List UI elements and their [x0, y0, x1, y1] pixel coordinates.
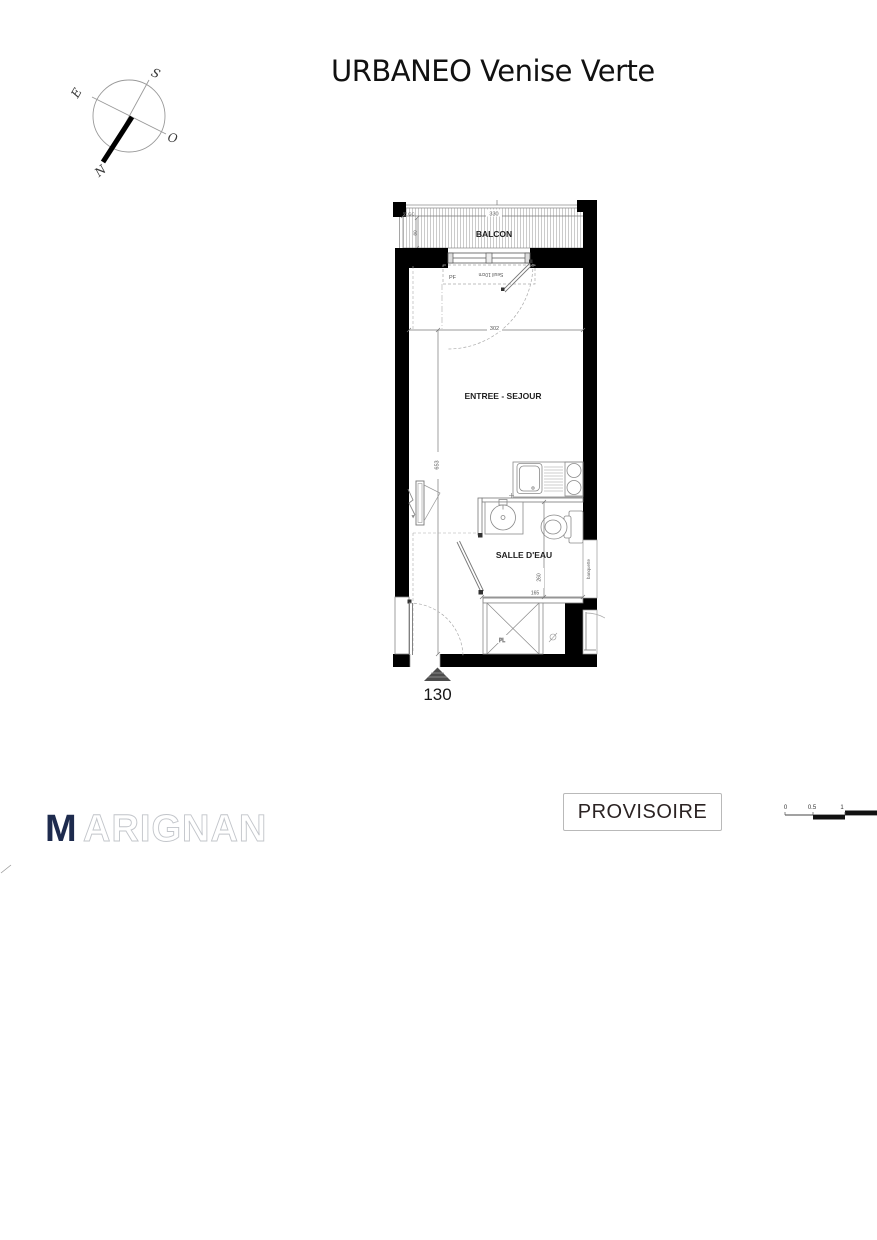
compass-west-label: O [167, 130, 179, 146]
unit-number: 130 [423, 685, 451, 704]
logo-wordmark: ARIGNAN [83, 808, 267, 850]
window-threshold-label: Seuil 10cm [479, 271, 504, 277]
marignan-logo: M ARIGNAN [45, 806, 270, 850]
scale-tick-1: 1 [840, 805, 844, 811]
unit-marker: 130 [423, 668, 451, 705]
compass-rose: S E O N [70, 60, 190, 182]
provisional-stamp-label: PROVISOIRE [578, 801, 707, 824]
living-room-label: ENTREE - SEJOUR [465, 391, 542, 401]
window-label: PF [449, 275, 457, 281]
living-length-dim: 653 [435, 460, 441, 469]
bathroom-width-dim: 165 [531, 591, 540, 597]
scale-tick-05: 0.5 [808, 805, 817, 811]
bathroom-depth-dim: 260 [537, 573, 543, 582]
lightning-bolt-icon [408, 489, 415, 515]
compass-needle-north [103, 117, 132, 162]
toilet [541, 511, 583, 543]
entrance-triangle-icon [424, 668, 451, 682]
bathroom-label: SALLE D'EAU [496, 550, 552, 560]
adjacent-door-recess [583, 610, 605, 654]
bench-label: banquette [586, 558, 591, 579]
scale-bar: 0 0.5 1 [780, 797, 877, 827]
scale-tick-0: 0 [784, 805, 788, 811]
balcony: 330 GC 80 BALCON [393, 200, 597, 250]
entry-guides [413, 533, 480, 652]
closet: PL [483, 603, 543, 654]
logo-initial: M [45, 808, 77, 850]
balcony-depth-dim: 80 [413, 230, 419, 236]
compass-south-label: S [149, 65, 162, 81]
bathroom-door [457, 533, 484, 595]
provisional-stamp: PROVISOIRE [563, 793, 722, 831]
electrical-panel [408, 481, 440, 525]
compass-north-label: N [91, 162, 109, 180]
bench-niche: banquette [583, 540, 597, 598]
balcony-label: BALCON [476, 229, 512, 239]
compass-east-label: E [70, 86, 85, 102]
door-threshold-mark [549, 633, 557, 642]
floor-plan-drawing: 330 GC 80 BALCON PF Seuil 10cm [393, 200, 605, 705]
washbasin [485, 500, 523, 535]
balcony-gutter-label: GC [408, 212, 416, 217]
page-title: URBANEO Venise Verte [331, 54, 655, 88]
page-edge-mark [0, 860, 14, 876]
closet-label: PL [499, 638, 505, 644]
living-width-dim: 302 [490, 326, 499, 332]
balcony-width-dim: 330 [489, 212, 498, 218]
kitchenette [509, 462, 583, 498]
